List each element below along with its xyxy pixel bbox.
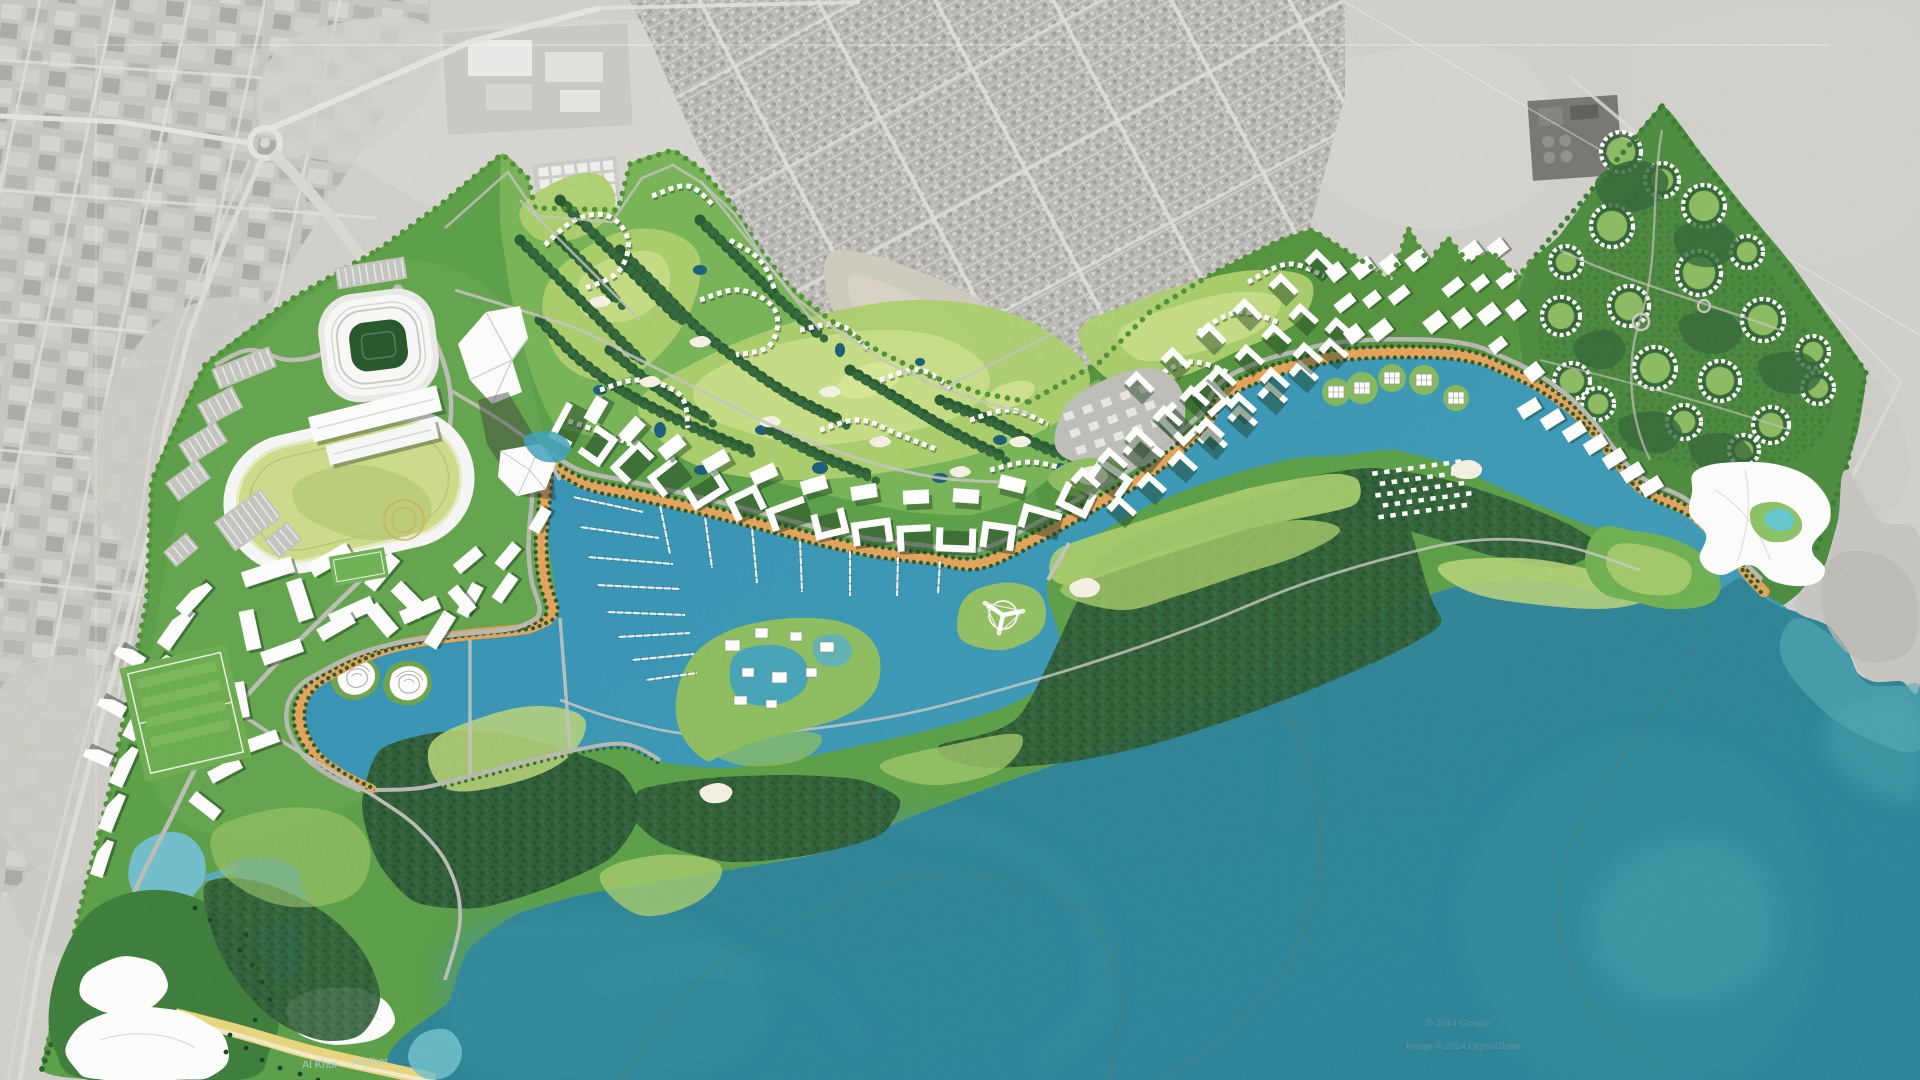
svg-text:© 2014 Google: © 2014 Google	[1426, 1018, 1490, 1029]
svg-text:Image © 2014 DigitalGlobe: Image © 2014 DigitalGlobe	[1406, 1041, 1520, 1052]
